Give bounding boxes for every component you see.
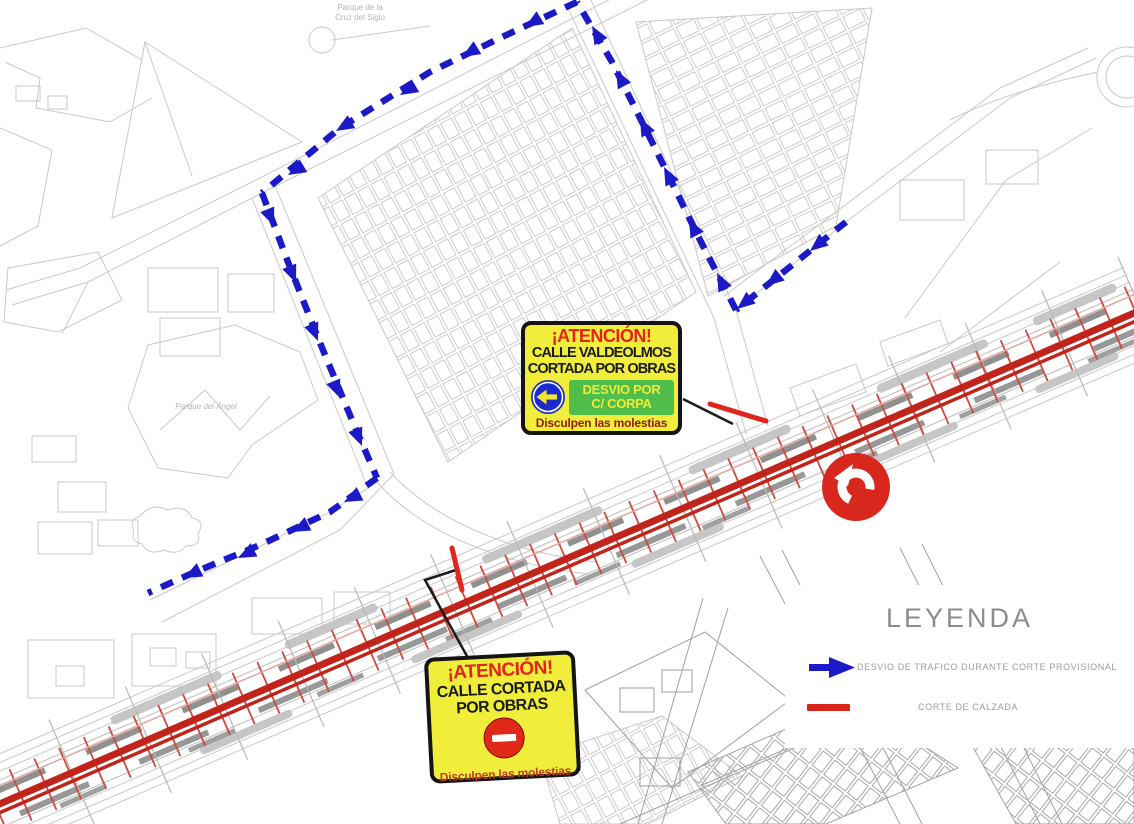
detour-line1: DESVIO POR — [569, 383, 674, 398]
no-entry-icon — [481, 715, 527, 761]
legend-closure-line-icon — [807, 704, 850, 711]
detour-box: DESVIO POR C/ CORPA — [569, 380, 674, 415]
attention-text: ¡ATENCIÓN! — [525, 327, 678, 346]
legend-title: LEYENDA — [785, 603, 1134, 634]
sign-valdeolmos: ¡ATENCIÓN! CALLE VALDEOLMOS CORTADA POR … — [521, 321, 682, 435]
sign-calle-cortada: ¡ATENCIÓN! CALLE CORTADA POR OBRAS Discu… — [424, 650, 581, 784]
legend-item-diversion: DESVIO DE TRAFICO DURANTE CORTE PROVISIO… — [785, 654, 1134, 680]
park-label-line2: Cruz del Siglo — [318, 13, 402, 23]
traffic-diversion-plan: Parque de la Cruz del Siglo Parque del Á… — [0, 0, 1134, 824]
legend-arrow-icon — [807, 654, 857, 680]
legend-label-diversion: DESVIO DE TRAFICO DURANTE CORTE PROVISIO… — [857, 662, 1117, 672]
park-label-line1: Parque de la — [318, 3, 402, 13]
legend: LEYENDA DESVIO DE TRAFICO DURANTE CORTE … — [785, 585, 1134, 748]
legend-label-closure: CORTE DE CALZADA — [918, 702, 1018, 712]
apology-text: Disculpen las molestias — [525, 416, 678, 430]
park-label-angel: Parque del Ángel — [160, 402, 252, 412]
park-label-cruz-del-siglo: Parque de la Cruz del Siglo — [318, 3, 402, 24]
sign-line1: CALLE VALDEOLMOS — [525, 346, 678, 362]
legend-item-closure: CORTE DE CALZADA — [785, 702, 1134, 712]
turn-left-icon — [530, 379, 566, 415]
loop-arrow-icon — [822, 453, 890, 521]
detour-line2: C/ CORPA — [569, 397, 674, 412]
sign-line2: CORTADA POR OBRAS — [525, 362, 678, 378]
